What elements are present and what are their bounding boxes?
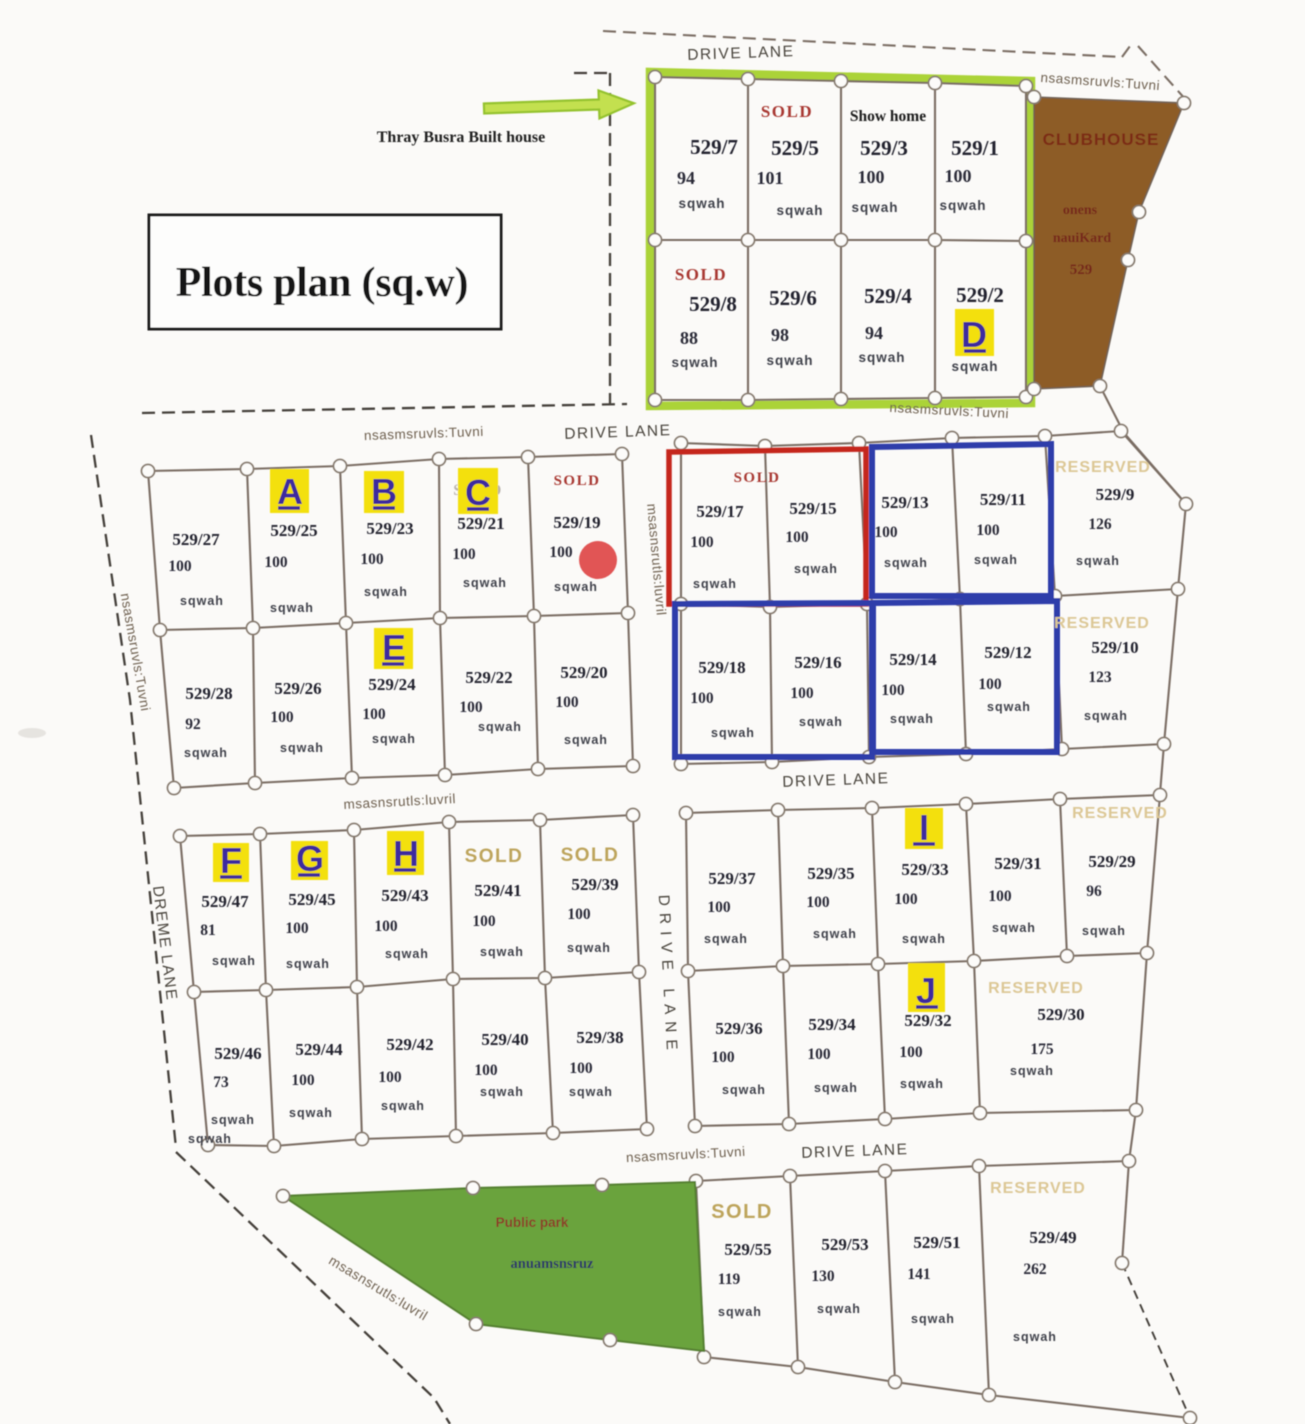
svg-text:100: 100	[567, 906, 591, 923]
svg-text:529/11: 529/11	[980, 490, 1026, 509]
svg-text:529/39: 529/39	[571, 875, 618, 894]
svg-text:sqwah: sqwah	[480, 945, 524, 959]
svg-text:SOLD: SOLD	[554, 473, 601, 489]
svg-text:sqwah: sqwah	[794, 562, 838, 576]
svg-text:SOLD: SOLD	[761, 102, 813, 121]
svg-text:529/37: 529/37	[708, 869, 756, 888]
svg-text:529/9: 529/9	[1096, 485, 1135, 504]
svg-text:sqwah: sqwah	[289, 1106, 333, 1120]
svg-text:sqwah: sqwah	[900, 1077, 944, 1091]
svg-text:529/24: 529/24	[368, 675, 416, 694]
svg-text:100: 100	[978, 676, 1002, 693]
svg-text:100: 100	[362, 706, 386, 723]
svg-text:G: G	[296, 838, 324, 879]
svg-text:529/26: 529/26	[274, 679, 321, 698]
svg-text:529/2: 529/2	[956, 283, 1004, 307]
svg-text:98: 98	[771, 325, 789, 345]
svg-text:sqwah: sqwah	[180, 594, 224, 608]
svg-text:F: F	[220, 840, 242, 881]
svg-text:sqwah: sqwah	[902, 932, 946, 946]
svg-text:100: 100	[472, 913, 496, 930]
svg-text:sqwah: sqwah	[212, 954, 256, 968]
svg-text:sqwah: sqwah	[1076, 554, 1120, 568]
svg-text:175: 175	[1030, 1041, 1054, 1058]
svg-text:sqwah: sqwah	[280, 741, 324, 755]
svg-text:sqwah: sqwah	[987, 700, 1031, 714]
svg-text:100: 100	[549, 544, 573, 561]
svg-text:SOLD: SOLD	[734, 470, 781, 486]
svg-text:101: 101	[757, 168, 784, 188]
svg-text:100: 100	[874, 524, 898, 541]
svg-text:sqwah: sqwah	[480, 1085, 524, 1099]
svg-text:529/41: 529/41	[474, 881, 521, 900]
svg-text:529/19: 529/19	[553, 513, 600, 532]
svg-text:100: 100	[976, 522, 1000, 539]
svg-text:sqwah: sqwah	[478, 720, 522, 734]
svg-text:sqwah: sqwah	[814, 1081, 858, 1095]
svg-text:sqwah: sqwah	[381, 1099, 425, 1113]
svg-text:529/49: 529/49	[1029, 1228, 1076, 1247]
svg-text:529/53: 529/53	[821, 1235, 868, 1254]
svg-text:529/38: 529/38	[576, 1028, 623, 1047]
svg-text:529/15: 529/15	[789, 499, 836, 518]
svg-text:100: 100	[690, 534, 714, 551]
svg-text:529/25: 529/25	[270, 521, 317, 540]
svg-text:Plots plan (sq.w): Plots plan (sq.w)	[176, 260, 468, 306]
svg-text:92: 92	[185, 716, 201, 733]
svg-text:94: 94	[677, 168, 695, 188]
svg-text:100: 100	[374, 918, 398, 935]
svg-text:73: 73	[213, 1074, 229, 1091]
svg-text:529/3: 529/3	[860, 136, 908, 160]
svg-text:onens: onens	[1063, 203, 1098, 218]
svg-text:100: 100	[806, 894, 830, 911]
svg-text:sqwah: sqwah	[799, 715, 843, 729]
svg-text:100: 100	[452, 546, 476, 563]
svg-text:SOLD: SOLD	[465, 846, 524, 867]
svg-text:126: 126	[1088, 516, 1112, 533]
svg-text:100: 100	[894, 891, 918, 908]
svg-text:sqwah: sqwah	[1010, 1064, 1054, 1078]
svg-text:100: 100	[270, 709, 294, 726]
svg-text:RESERVED: RESERVED	[1054, 615, 1150, 632]
svg-text:sqwah: sqwah	[992, 921, 1036, 935]
svg-text:100: 100	[707, 899, 731, 916]
svg-text:CLUBHOUSE: CLUBHOUSE	[1043, 130, 1160, 149]
svg-text:sqwah: sqwah	[1084, 709, 1128, 723]
svg-text:529/21: 529/21	[457, 514, 504, 533]
svg-text:529/14: 529/14	[889, 650, 937, 669]
svg-text:100: 100	[785, 529, 809, 546]
svg-text:sqwah: sqwah	[567, 941, 611, 955]
svg-text:Show home: Show home	[850, 108, 926, 125]
svg-text:sqwah: sqwah	[364, 585, 408, 599]
svg-text:sqwah: sqwah	[911, 1312, 955, 1326]
svg-text:J: J	[916, 970, 936, 1011]
svg-text:529/33: 529/33	[901, 860, 948, 879]
svg-text:529/36: 529/36	[715, 1019, 762, 1038]
svg-text:RESERVED: RESERVED	[990, 1180, 1086, 1197]
svg-text:529: 529	[1070, 262, 1093, 278]
svg-text:81: 81	[200, 922, 216, 939]
svg-text:529/16: 529/16	[794, 653, 841, 672]
svg-text:sqwah: sqwah	[711, 726, 755, 740]
svg-text:100: 100	[264, 554, 288, 571]
svg-text:sqwah: sqwah	[704, 932, 748, 946]
svg-text:529/35: 529/35	[807, 864, 854, 883]
svg-text:100: 100	[988, 888, 1012, 905]
svg-text:529/32: 529/32	[904, 1011, 951, 1030]
svg-text:sqwah: sqwah	[851, 200, 898, 215]
svg-text:sqwah: sqwah	[554, 580, 598, 594]
svg-text:sqwah: sqwah	[884, 556, 928, 570]
svg-text:SOLD: SOLD	[675, 265, 727, 284]
svg-text:141: 141	[907, 1266, 930, 1283]
svg-text:529/8: 529/8	[689, 292, 737, 316]
svg-text:sqwah: sqwah	[671, 355, 718, 370]
svg-text:sqwah: sqwah	[776, 203, 823, 218]
svg-text:100: 100	[459, 699, 483, 716]
svg-text:sqwah: sqwah	[463, 576, 507, 590]
svg-text:88: 88	[680, 328, 698, 348]
svg-text:sqwah: sqwah	[286, 957, 330, 971]
svg-text:529/46: 529/46	[214, 1044, 261, 1063]
svg-text:sqwah: sqwah	[813, 927, 857, 941]
svg-text:262: 262	[1023, 1261, 1047, 1278]
svg-text:RESERVED: RESERVED	[1055, 459, 1151, 476]
svg-text:100: 100	[858, 167, 885, 187]
svg-text:100: 100	[945, 166, 972, 186]
svg-text:529/29: 529/29	[1088, 852, 1135, 871]
svg-text:100: 100	[360, 551, 384, 568]
svg-text:529/31: 529/31	[994, 854, 1041, 873]
svg-text:529/13: 529/13	[881, 493, 928, 512]
svg-text:96: 96	[1086, 883, 1102, 900]
svg-text:anuamsnsruz: anuamsnsruz	[511, 1256, 595, 1272]
svg-text:100: 100	[569, 1060, 593, 1077]
svg-text:sqwah: sqwah	[678, 196, 725, 211]
svg-text:529/1: 529/1	[951, 136, 999, 160]
svg-text:130: 130	[811, 1268, 835, 1285]
svg-text:529/6: 529/6	[769, 286, 817, 310]
svg-text:529/45: 529/45	[288, 890, 335, 909]
svg-text:RESERVED: RESERVED	[988, 980, 1084, 997]
svg-text:529/18: 529/18	[698, 658, 745, 677]
svg-text:100: 100	[555, 694, 579, 711]
svg-text:sqwah: sqwah	[766, 353, 813, 368]
svg-text:SOLD: SOLD	[561, 845, 620, 866]
svg-text:529/22: 529/22	[465, 668, 512, 687]
svg-text:529/47: 529/47	[201, 892, 249, 911]
svg-text:529/42: 529/42	[386, 1035, 433, 1054]
svg-text:529/30: 529/30	[1037, 1005, 1084, 1024]
svg-text:529/5: 529/5	[771, 136, 819, 160]
svg-text:sqwah: sqwah	[569, 1085, 613, 1099]
svg-text:nauiKard: nauiKard	[1053, 231, 1112, 246]
svg-text:C: C	[465, 472, 491, 513]
svg-text:100: 100	[899, 1044, 923, 1061]
svg-text:119: 119	[718, 1271, 741, 1288]
svg-text:529/40: 529/40	[481, 1030, 528, 1049]
svg-text:sqwah: sqwah	[372, 732, 416, 746]
svg-text:sqwah: sqwah	[1013, 1330, 1057, 1344]
svg-text:94: 94	[865, 323, 883, 343]
svg-text:529/28: 529/28	[185, 684, 232, 703]
svg-text:529/7: 529/7	[690, 135, 738, 159]
svg-text:sqwah: sqwah	[693, 577, 737, 591]
svg-text:E: E	[382, 627, 406, 668]
svg-text:529/20: 529/20	[560, 663, 607, 682]
svg-text:100: 100	[285, 920, 309, 937]
svg-text:Public park: Public park	[496, 1215, 569, 1230]
svg-text:sqwah: sqwah	[1082, 924, 1126, 938]
svg-text:100: 100	[378, 1069, 402, 1086]
svg-text:sqwah: sqwah	[564, 733, 608, 747]
svg-text:100: 100	[474, 1062, 498, 1079]
svg-text:sqwah: sqwah	[385, 947, 429, 961]
svg-text:sqwah: sqwah	[270, 601, 314, 615]
svg-text:100: 100	[807, 1046, 831, 1063]
svg-text:I: I	[919, 807, 929, 848]
svg-text:sqwah: sqwah	[184, 746, 228, 760]
svg-text:529/12: 529/12	[984, 643, 1031, 662]
svg-text:529/51: 529/51	[913, 1233, 960, 1252]
svg-text:100: 100	[168, 558, 192, 575]
svg-text:H: H	[393, 833, 419, 874]
svg-text:SOLD: SOLD	[711, 1201, 773, 1223]
svg-text:sqwah: sqwah	[722, 1083, 766, 1097]
svg-text:529/34: 529/34	[808, 1015, 856, 1034]
svg-text:529/17: 529/17	[696, 502, 744, 521]
svg-text:529/43: 529/43	[381, 886, 428, 905]
svg-text:sqwah: sqwah	[951, 359, 998, 374]
svg-text:529/55: 529/55	[724, 1240, 771, 1259]
svg-text:sqwah: sqwah	[974, 553, 1018, 567]
svg-text:sqwah: sqwah	[939, 198, 986, 213]
svg-text:529/44: 529/44	[295, 1040, 343, 1059]
svg-text:529/4: 529/4	[864, 284, 912, 308]
svg-text:100: 100	[291, 1072, 315, 1089]
svg-text:sqwah: sqwah	[211, 1113, 255, 1127]
svg-text:sqwah: sqwah	[718, 1305, 762, 1319]
svg-text:123: 123	[1088, 669, 1112, 686]
svg-text:sqwah: sqwah	[188, 1132, 232, 1146]
svg-text:529/27: 529/27	[172, 530, 220, 549]
svg-text:B: B	[371, 471, 397, 512]
svg-text:D: D	[961, 314, 987, 355]
svg-text:100: 100	[790, 685, 814, 702]
svg-text:sqwah: sqwah	[817, 1302, 861, 1316]
svg-text:sqwah: sqwah	[858, 350, 905, 365]
svg-text:RESERVED: RESERVED	[1072, 805, 1168, 822]
svg-text:529/23: 529/23	[366, 519, 413, 538]
svg-text:Thray Busra Built house: Thray Busra Built house	[377, 129, 545, 146]
svg-text:529/10: 529/10	[1091, 638, 1138, 657]
svg-text:100: 100	[881, 682, 905, 699]
svg-text:A: A	[277, 471, 303, 512]
svg-text:sqwah: sqwah	[890, 712, 934, 726]
svg-text:100: 100	[690, 690, 714, 707]
svg-text:100: 100	[711, 1049, 735, 1066]
